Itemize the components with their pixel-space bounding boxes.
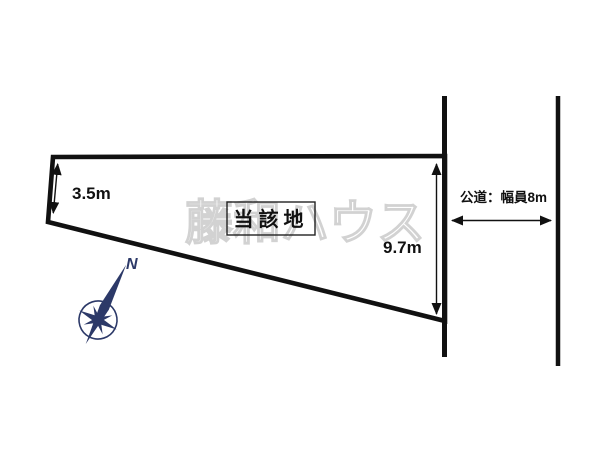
right-dimension-label: 9.7m [383, 238, 422, 257]
site-plan-svg: 藤和ハウス 3.5m 9.7m 公道：幅員8m 当該地 [0, 0, 600, 450]
site-plan-canvas: 藤和ハウス 3.5m 9.7m 公道：幅員8m 当該地 [0, 0, 600, 450]
left-dimension-label: 3.5m [72, 184, 111, 203]
north-label: N [126, 256, 138, 273]
road-label: 公道：幅員8m [460, 189, 547, 205]
site-label: 当該地 [234, 207, 309, 231]
